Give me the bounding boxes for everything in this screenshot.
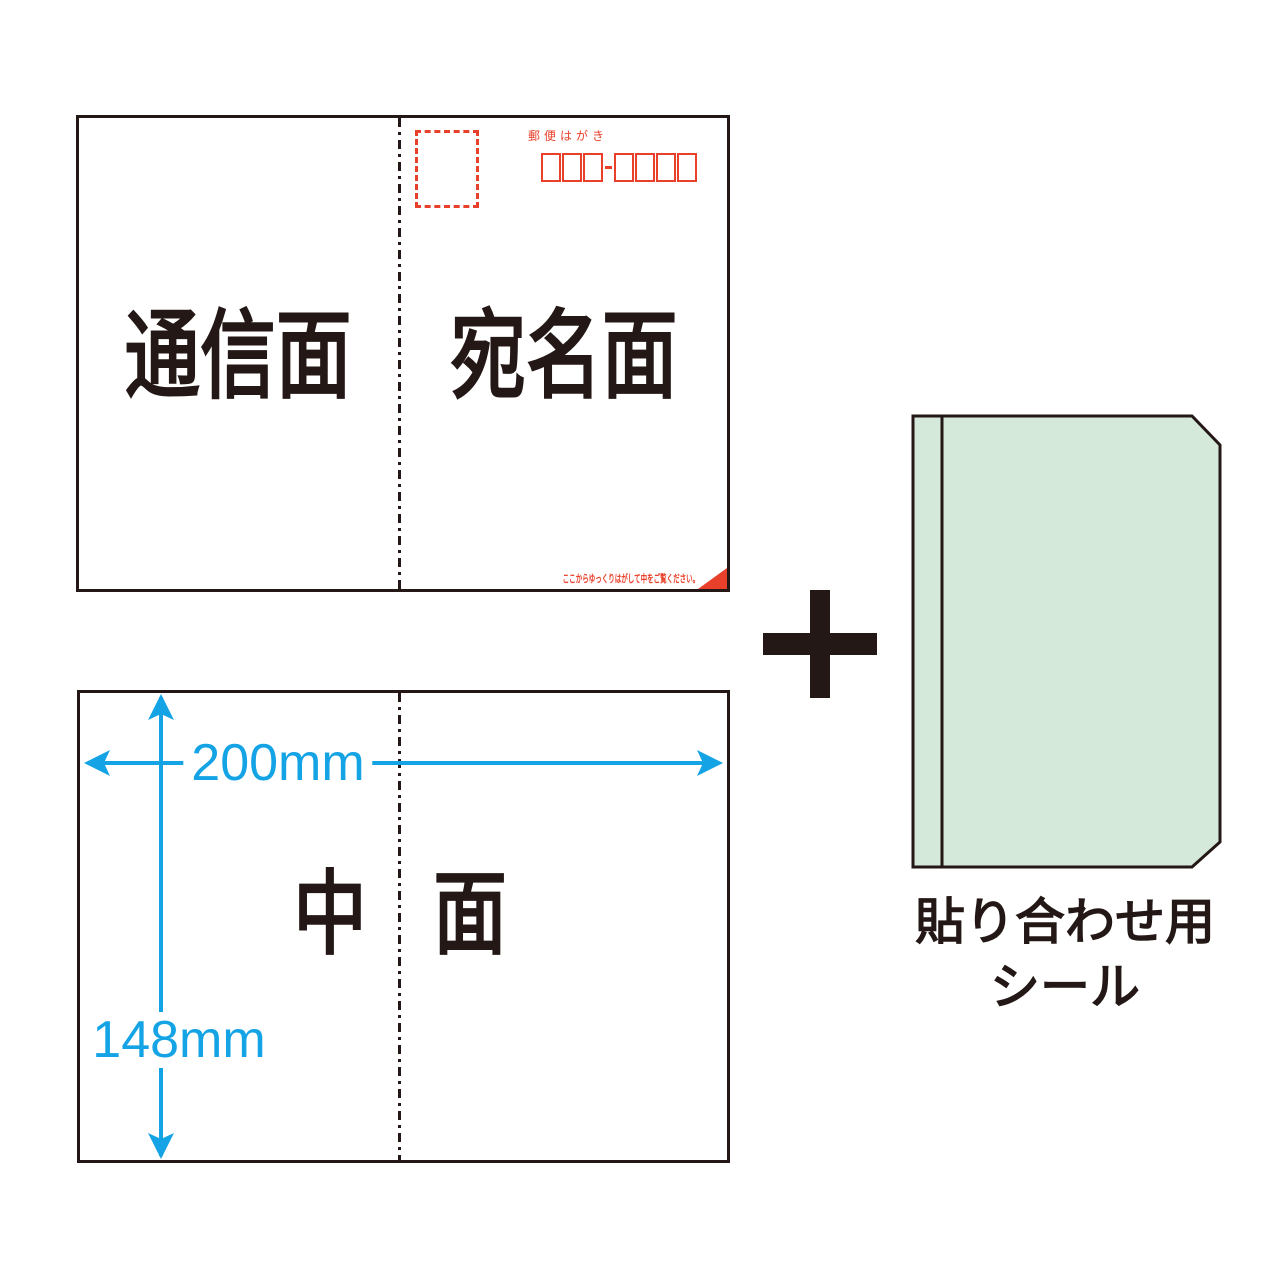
plus-icon (763, 590, 877, 698)
postal-code-box (541, 153, 561, 182)
postcard-inner-sheet: 中 面 200mm 148mm (77, 690, 730, 1163)
height-dimension-label: 148mm (84, 1012, 273, 1068)
postcard-postmark-text: 郵便はがき (528, 127, 608, 144)
postal-code-box (677, 153, 697, 182)
communication-side-label: 通信面 (125, 308, 352, 405)
postal-code-boxes (541, 153, 697, 182)
seal-caption: 貼り合わせ用 シール (890, 890, 1240, 1020)
postal-code-box (583, 153, 603, 182)
fold-line (398, 118, 401, 589)
postal-code-box (656, 153, 676, 182)
postal-code-box (635, 153, 655, 182)
seal-caption-line1: 貼り合わせ用 (890, 890, 1240, 955)
peel-corner-icon (698, 568, 727, 589)
dimension-arrows-icon (80, 693, 727, 1160)
postcard-product-diagram: 通信面 宛名面 郵便はがき ここからゆっくりはがして中をご覧ください。 中 面 … (0, 0, 1280, 1280)
address-side-label: 宛名面 (451, 308, 678, 405)
seal-caption-line2: シール (890, 955, 1240, 1020)
postal-code-box (562, 153, 582, 182)
postcard-outside-sheet: 通信面 宛名面 郵便はがき ここからゆっくりはがして中をご覧ください。 (76, 115, 730, 592)
peel-instruction-text: ここからゆっくりはがして中をご覧ください。 (562, 571, 699, 586)
seal-sheet-shape (910, 413, 1223, 870)
adhesive-seal-sheet (910, 413, 1223, 870)
width-dimension-label: 200mm (183, 735, 372, 791)
postal-code-box (614, 153, 634, 182)
stamp-placement-box (415, 130, 479, 208)
postal-code-dash (605, 166, 612, 169)
